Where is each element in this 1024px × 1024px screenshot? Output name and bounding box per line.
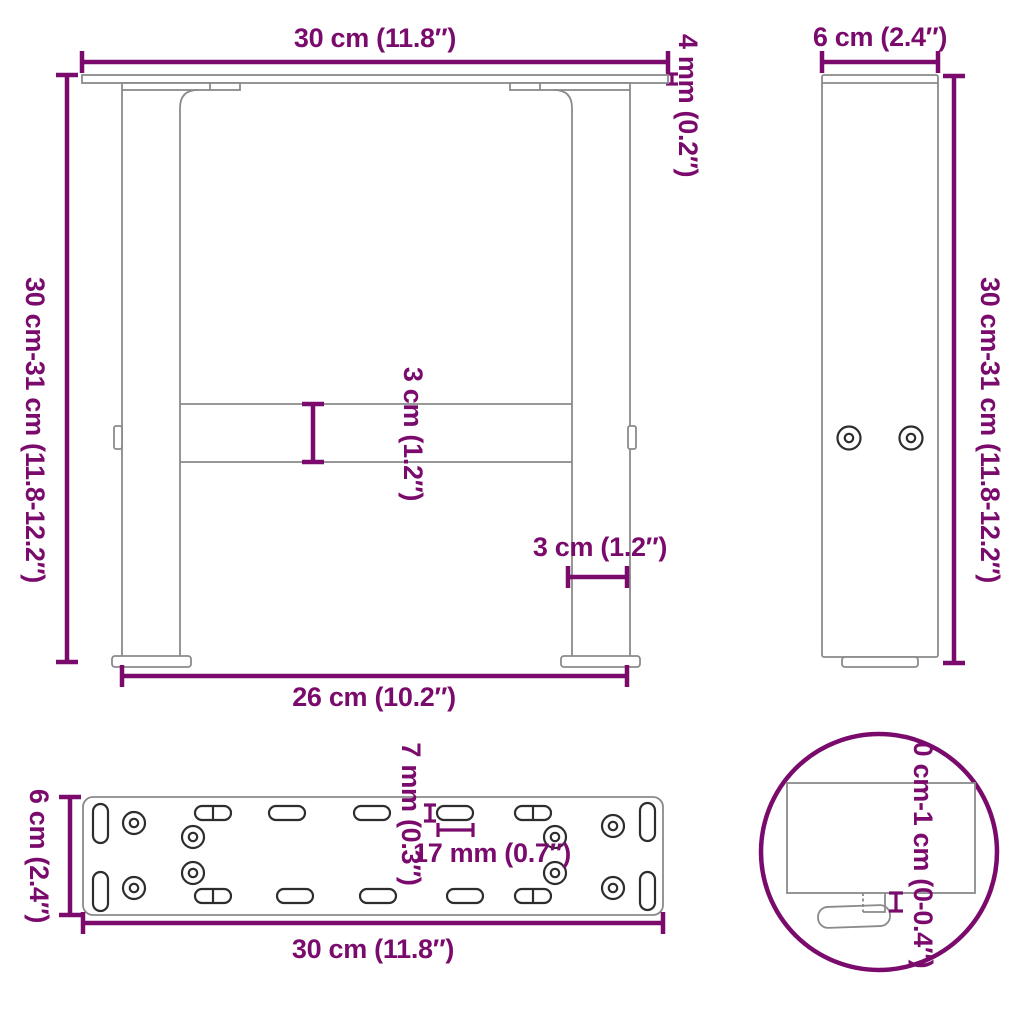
foot-pad [818, 905, 891, 929]
screw-slot [360, 889, 396, 903]
plate-depth-label: 6 cm (2.4″) [24, 789, 54, 923]
left-leg-tab [114, 426, 122, 449]
screw-slot [277, 889, 313, 903]
plate-depth-dimension: 6 cm (2.4″) [24, 789, 81, 923]
screw-slot [269, 806, 305, 820]
side-view: 6 cm (2.4″) 30 cm-31 cm (11.8-12.2″) [813, 22, 1005, 667]
front-feet-span-label: 26 cm (10.2″) [292, 682, 456, 712]
vertical-slot [640, 803, 655, 841]
grommet-inner [130, 884, 138, 892]
left-mounting-bracket [122, 83, 240, 90]
grommet-inner [189, 833, 197, 841]
front-crossbar-label: 3 cm (1.2″) [398, 367, 428, 501]
dimension-diagram: 30 cm (11.8″) 4 mm (0.2″) 30 cm-31 cm (1… [0, 0, 1024, 1024]
screw-slot [354, 806, 390, 820]
front-crossbar-dimension: 3 cm (1.2″) [302, 367, 428, 501]
detail-adjust-label: 0 cm-1 cm (0-0.4″) [908, 742, 938, 969]
left-leg-inner-edge [180, 90, 198, 656]
front-height-dimension: 30 cm-31 cm (11.8-12.2″) [20, 75, 78, 662]
plate-width-dimension: 30 cm (11.8″) [83, 912, 663, 964]
detail-leg-bottom [787, 783, 975, 893]
bolt-inner [907, 434, 915, 442]
grommet-inner [189, 869, 197, 877]
plate-slot-length-label: 17 mm (0.7″) [413, 838, 571, 868]
plate-view: 6 cm (2.4″) [24, 742, 663, 964]
vertical-slot [93, 872, 108, 911]
side-depth-dimension: 6 cm (2.4″) [813, 22, 947, 73]
side-foot [842, 657, 918, 667]
screw-slot [437, 806, 473, 820]
detail-view: 0 cm-1 cm (0-0.4″) [761, 734, 997, 970]
front-top-width-label: 30 cm (11.8″) [294, 23, 456, 53]
vertical-slot [640, 872, 655, 910]
plate-width-label: 30 cm (11.8″) [292, 934, 454, 964]
front-feet-span-dimension: 26 cm (10.2″) [122, 665, 627, 712]
front-leg-width-dimension: 3 cm (1.2″) [533, 532, 667, 588]
side-leg-body [822, 75, 938, 667]
screw-slot [447, 889, 483, 903]
diagram-canvas: 30 cm (11.8″) 4 mm (0.2″) 30 cm-31 cm (1… [0, 0, 1024, 1024]
grommet-inner [130, 819, 138, 827]
side-leg-outline [822, 75, 938, 657]
vertical-slot [93, 804, 108, 843]
side-height-label: 30 cm-31 cm (11.8-12.2″) [975, 277, 1005, 583]
side-depth-label: 6 cm (2.4″) [813, 22, 947, 52]
front-view: 30 cm (11.8″) 4 mm (0.2″) 30 cm-31 cm (1… [20, 23, 703, 712]
front-leg-width-label: 3 cm (1.2″) [533, 532, 667, 562]
side-height-dimension: 30 cm-31 cm (11.8-12.2″) [943, 76, 1005, 663]
detail-adjustable-foot [818, 893, 891, 928]
grommet-inner [609, 822, 617, 830]
grommet-inner [551, 869, 559, 877]
grommet-inner [609, 884, 617, 892]
table-top-plate [82, 75, 668, 83]
front-height-label: 30 cm-31 cm (11.8-12.2″) [20, 277, 50, 583]
right-mounting-bracket [510, 83, 630, 90]
front-top-width-dimension: 30 cm (11.8″) [82, 23, 668, 73]
front-plate-thickness-dimension: 4 mm (0.2″) [666, 34, 703, 177]
bolt-inner [845, 434, 853, 442]
right-leg-tab [628, 426, 636, 449]
front-plate-thickness-label: 4 mm (0.2″) [673, 34, 703, 177]
